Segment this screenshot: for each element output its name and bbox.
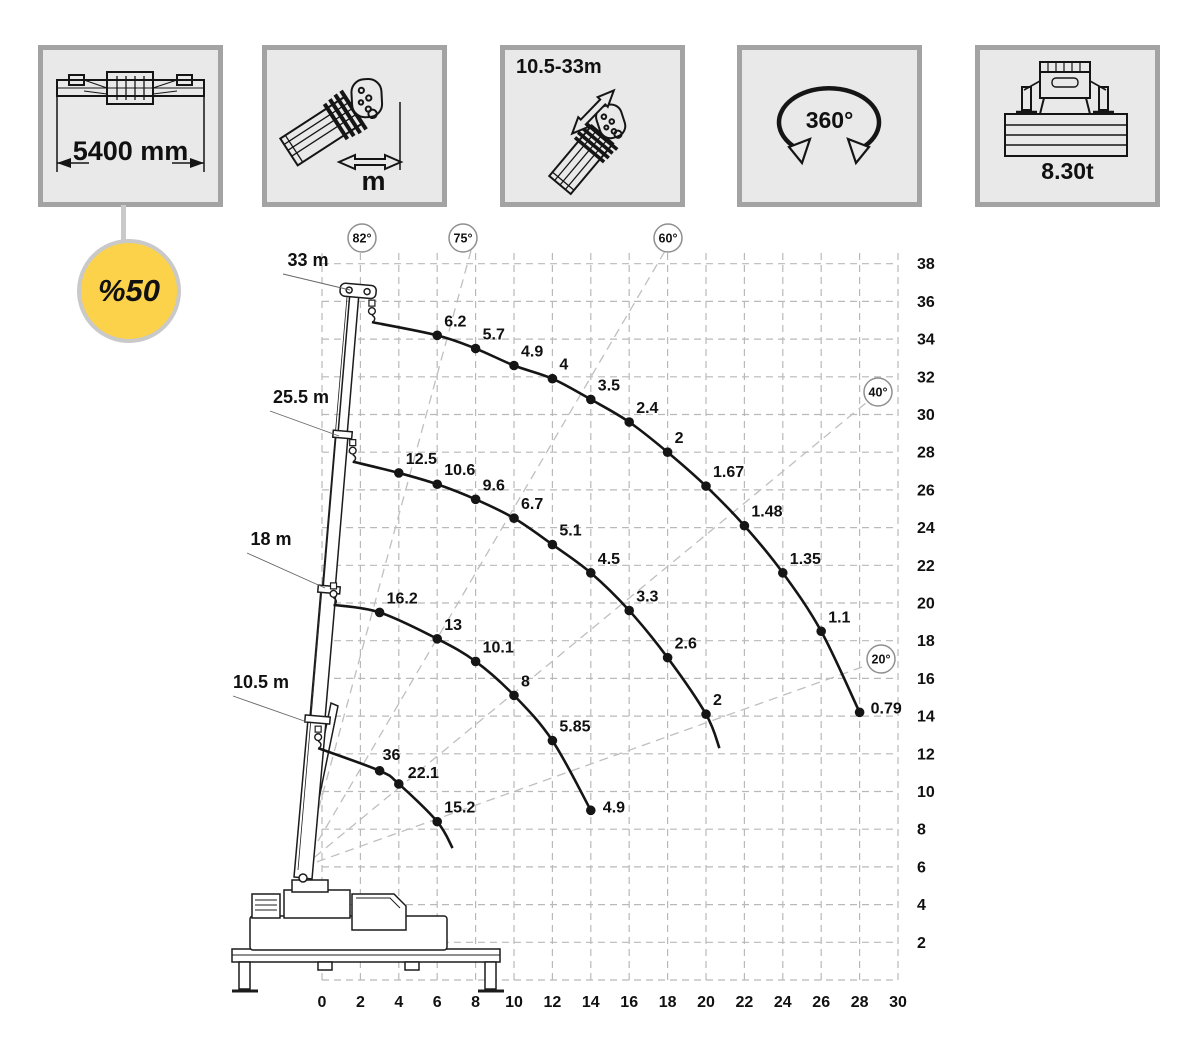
curve-point (432, 479, 442, 489)
curve-point (432, 817, 442, 827)
y-axis-tick: 16 (917, 671, 935, 688)
load-value-label: 8 (521, 673, 530, 690)
load-value-label: 1.1 (828, 609, 850, 626)
load-value-label: 12.5 (406, 451, 437, 468)
curve-point (471, 657, 481, 667)
load-value-label: 10.1 (483, 639, 514, 656)
angle-label: 20° (872, 653, 891, 667)
x-axis-tick: 28 (851, 994, 869, 1011)
curve-point (740, 521, 750, 531)
load-value-label: 2 (675, 430, 684, 447)
x-axis-tick: 2 (356, 994, 365, 1011)
y-axis-tick: 14 (917, 709, 935, 726)
load-value-label: 10.6 (444, 462, 475, 479)
angle-label: 75° (454, 232, 473, 246)
y-axis-tick: 34 (917, 332, 935, 349)
curve-point (586, 395, 596, 405)
x-axis-tick: 22 (736, 994, 754, 1011)
load-value-label: 4.9 (521, 343, 543, 360)
y-axis-tick: 8 (917, 822, 926, 839)
load-value-label: 1.35 (790, 551, 821, 568)
load-curve-18m (334, 605, 591, 810)
curve-point (663, 653, 673, 663)
load-value-label: 5.7 (483, 327, 505, 344)
y-axis-tick: 24 (917, 520, 935, 537)
load-value-label: 4.5 (598, 551, 620, 568)
crane-load-chart-page: 5400 mm (0, 0, 1200, 1047)
boom-label-leader (247, 553, 325, 588)
angle-label: 82° (353, 232, 372, 246)
x-axis-tick: 16 (620, 994, 638, 1011)
curve-point (432, 331, 442, 341)
load-value-label: 3.5 (598, 377, 620, 394)
angle-label: 40° (869, 386, 888, 400)
load-value-label: 36 (383, 747, 401, 764)
curve-point (375, 766, 385, 776)
load-value-label: 5.85 (559, 719, 590, 736)
load-curves: 6.25.74.943.52.421.671.481.351.10.7912.5… (315, 300, 902, 848)
curve-point (701, 709, 711, 719)
load-value-label: 1.48 (751, 504, 782, 521)
boom-length-label: 33 m (287, 250, 328, 270)
y-axis-tick: 30 (917, 407, 935, 424)
x-axis-tick: 8 (471, 994, 480, 1011)
y-axis-tick: 4 (917, 897, 926, 914)
y-axis-tick: 22 (917, 558, 935, 575)
load-value-label: 4 (559, 357, 568, 374)
curve-point (375, 608, 385, 618)
working-range-chart: 6.25.74.943.52.421.671.481.351.10.7912.5… (0, 0, 1200, 1047)
hook-icon (369, 300, 376, 322)
curve-point (509, 691, 519, 701)
load-value-label: 2 (713, 692, 722, 709)
curve-point (432, 634, 442, 644)
load-value-label: 16.2 (387, 590, 418, 607)
x-axis-tick: 30 (889, 994, 907, 1011)
boom-label-leader (233, 696, 307, 722)
curve-point (778, 568, 788, 578)
boom-length-label: 18 m (250, 529, 291, 549)
load-value-label: 3.3 (636, 589, 658, 606)
y-axis-tick: 28 (917, 445, 935, 462)
load-value-label: 6.7 (521, 496, 543, 513)
load-value-label: 2.6 (675, 636, 697, 653)
load-value-label: 5.1 (559, 523, 581, 540)
curve-point (624, 417, 634, 427)
load-value-label: 15.2 (444, 800, 475, 817)
load-value-label: 6.2 (444, 313, 466, 330)
curve-point (509, 513, 519, 523)
x-axis-tick: 20 (697, 994, 715, 1011)
curve-point (471, 495, 481, 505)
curve-point (394, 779, 404, 789)
curve-point (816, 626, 826, 636)
load-value-label: 2.4 (636, 400, 658, 417)
x-axis-tick: 4 (394, 994, 403, 1011)
x-axis-tick: 6 (433, 994, 442, 1011)
x-axis-tick: 0 (318, 994, 327, 1011)
load-value-label: 4.9 (603, 799, 625, 816)
hook-icon (349, 440, 356, 462)
y-axis-tick: 26 (917, 482, 935, 499)
curve-point (394, 468, 404, 478)
x-axis-tick: 26 (812, 994, 830, 1011)
curve-point (586, 568, 596, 578)
y-axis-tick: 2 (917, 935, 926, 952)
y-axis-tick: 36 (917, 294, 935, 311)
load-value-label: 0.79 (871, 700, 902, 717)
curve-point (548, 374, 558, 384)
curve-point (701, 481, 711, 491)
y-axis-tick: 20 (917, 596, 935, 613)
curve-point (663, 447, 673, 457)
y-axis-tick: 6 (917, 859, 926, 876)
load-value-label: 13 (444, 617, 462, 634)
x-axis-tick: 10 (505, 994, 523, 1011)
y-axis-tick: 18 (917, 633, 935, 650)
y-axis-tick: 10 (917, 784, 935, 801)
curve-point (624, 606, 634, 616)
curve-point (509, 361, 519, 371)
y-axis-tick: 38 (917, 256, 935, 273)
x-axis-tick: 24 (774, 994, 792, 1011)
curve-point (586, 806, 596, 816)
y-axis-tick: 12 (917, 746, 935, 763)
load-value-label: 22.1 (408, 765, 439, 782)
curve-point (548, 540, 558, 550)
boom-label-leader (283, 274, 350, 290)
load-value-label: 9.6 (483, 477, 505, 494)
load-value-label: 1.67 (713, 464, 744, 481)
curve-point (548, 736, 558, 746)
curve-point (471, 344, 481, 354)
boom-length-label: 25.5 m (273, 387, 329, 407)
boom-length-label: 10.5 m (233, 672, 289, 692)
x-axis-tick: 14 (582, 994, 600, 1011)
y-axis-tick: 32 (917, 369, 935, 386)
curve-point (855, 708, 865, 718)
angle-ray (303, 381, 892, 867)
x-axis-tick: 12 (544, 994, 562, 1011)
angle-label: 60° (659, 232, 678, 246)
x-axis-tick: 18 (659, 994, 677, 1011)
